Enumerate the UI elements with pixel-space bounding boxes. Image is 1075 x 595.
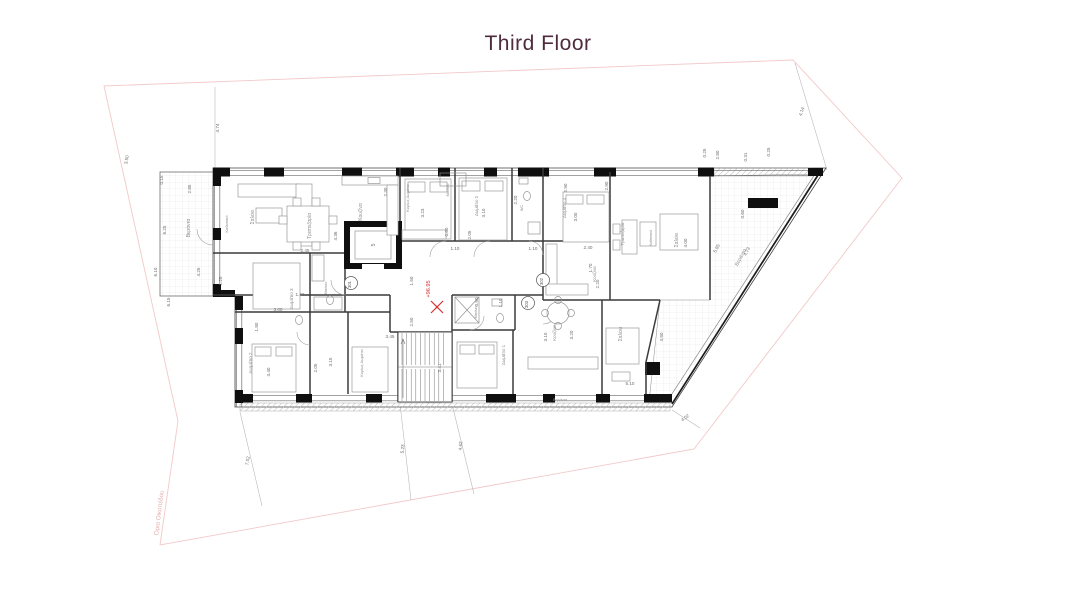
elevator-label: 5 <box>371 243 377 246</box>
dimension-label: 3.50 <box>123 154 130 164</box>
dimension-label: 1.40 <box>296 292 305 297</box>
dimension-label: 2.85 <box>187 184 192 193</box>
dimension-label: 5.10 <box>626 381 635 386</box>
dimension-label: 3.40 <box>266 367 271 376</box>
dimension-label: 0.90 <box>474 297 479 306</box>
building: 5 <box>160 168 826 412</box>
dimension-label: 3.45 <box>386 334 395 339</box>
bottom-sill-band <box>240 403 670 411</box>
dimension-label: 0.31 <box>743 152 748 161</box>
dimension-label: 0.25 <box>766 147 771 156</box>
room-label: Μπάνιο <box>446 184 450 197</box>
room-label: Βεράντα <box>553 398 568 402</box>
room-label: Τραπεζαρία <box>620 222 625 245</box>
dimension-label: 0.25 <box>702 148 707 157</box>
staircase <box>398 332 452 402</box>
dimension-label: 0.15 <box>159 175 164 184</box>
apartment-number-text: 301 <box>347 280 352 288</box>
room-label: Σαλόνι <box>249 210 256 225</box>
floor-plan-drawing: Third Floor <box>0 0 1075 595</box>
dimension-label: 3.20 <box>569 330 574 339</box>
dimension-label: 1.10 <box>498 298 503 307</box>
room-label: WC <box>520 205 524 212</box>
dimension-label: 2.80 <box>715 150 720 159</box>
room-label: Κυρίως Δωμάτιο <box>360 349 364 377</box>
dimension-label: 1.70 <box>588 263 593 272</box>
dimension-label: 6.15 <box>166 297 171 306</box>
dimension-label: 2.05 <box>313 363 318 372</box>
dimension-label: 2.30 <box>383 187 388 196</box>
dimension-label: 1.50 <box>409 276 414 285</box>
dimension-label: 2.90 <box>604 181 609 190</box>
floor-plan-page: Third Floor <box>0 0 1075 595</box>
apartment-number-text: 302 <box>539 277 544 285</box>
plot-boundary-label: Όρια Οικοπέδου <box>153 490 166 537</box>
dimension-label: 4.74 <box>215 123 220 132</box>
apartment-number-text: 303 <box>524 300 529 308</box>
room-label: Βεράντα <box>185 219 192 238</box>
dimension-label: 2.90 <box>563 183 568 192</box>
room-label: Κουζίνα <box>552 325 557 341</box>
dimension-label: 3.41 <box>437 363 442 372</box>
dimension-label: 4.80 <box>659 332 664 341</box>
dimension-label: 4.36 <box>333 231 338 240</box>
dimension-label: 2.50 <box>409 317 414 326</box>
dimension-label: 3.23 <box>420 208 425 217</box>
dimension-label: 2.45 <box>301 248 310 253</box>
room-label: Δωμάτιο 3 <box>562 197 567 218</box>
dimension-label: 4.00 <box>683 238 688 247</box>
dimension-label: 1.25 <box>218 276 223 285</box>
dimension-label: 5.23 <box>400 444 406 454</box>
top-right-parapet-band <box>714 168 812 176</box>
dimension-label: 6.25 <box>162 225 167 234</box>
dimension-label: 2.20 <box>513 195 518 204</box>
level-value: +96.95 <box>426 280 432 297</box>
room-label: Μπάνιο <box>324 282 328 295</box>
dimension-label: 3.15 <box>328 357 333 366</box>
dimension-label: 3.10 <box>543 332 548 341</box>
page-title: Third Floor <box>484 32 591 55</box>
dimension-label: 7.02 <box>244 455 251 465</box>
dimension-label: 1.80 <box>254 322 259 331</box>
dimension-label: 0.80 <box>444 227 449 236</box>
dimension-label: 4.14 <box>798 106 806 116</box>
dimension-label: 3.10 <box>481 208 486 217</box>
room-label: Δωμάτιο 3 <box>288 288 294 310</box>
dimension-label: 3.00 <box>274 307 283 312</box>
room-label: Καθιστικό <box>649 230 653 246</box>
dimension-label: 1.10 <box>451 246 460 251</box>
dimension-label: 3.00 <box>573 212 578 221</box>
dimension-label: 0.60 <box>740 209 745 218</box>
room-label: Σαλόνι <box>673 233 680 248</box>
dimension-label: 4.62 <box>458 441 464 451</box>
room-label: Μπάνιο <box>474 306 478 319</box>
dimension-label: 2.05 <box>467 230 472 239</box>
room-label: Σαλόνι <box>617 327 624 342</box>
dimension-label: 2.40 <box>584 245 593 250</box>
dimension-label: 2.20 <box>595 279 600 288</box>
dimension-label: 4.25 <box>196 267 201 276</box>
dimension-label: 6.10 <box>153 267 158 276</box>
room-label: Κουζίνα <box>358 203 364 221</box>
dimension-label: 1.10 <box>529 246 538 251</box>
room-label: Δωμάτιο 2 <box>474 195 479 216</box>
room-label: Τραπεζαρία <box>307 213 313 239</box>
room-label: Κυρίως Δωμάτιο <box>406 184 410 212</box>
room-label: Καθιστικό <box>224 215 229 233</box>
room-label: Δωμάτιο 2 <box>247 352 253 374</box>
room-label: Δωμάτιο 1 <box>501 344 506 365</box>
